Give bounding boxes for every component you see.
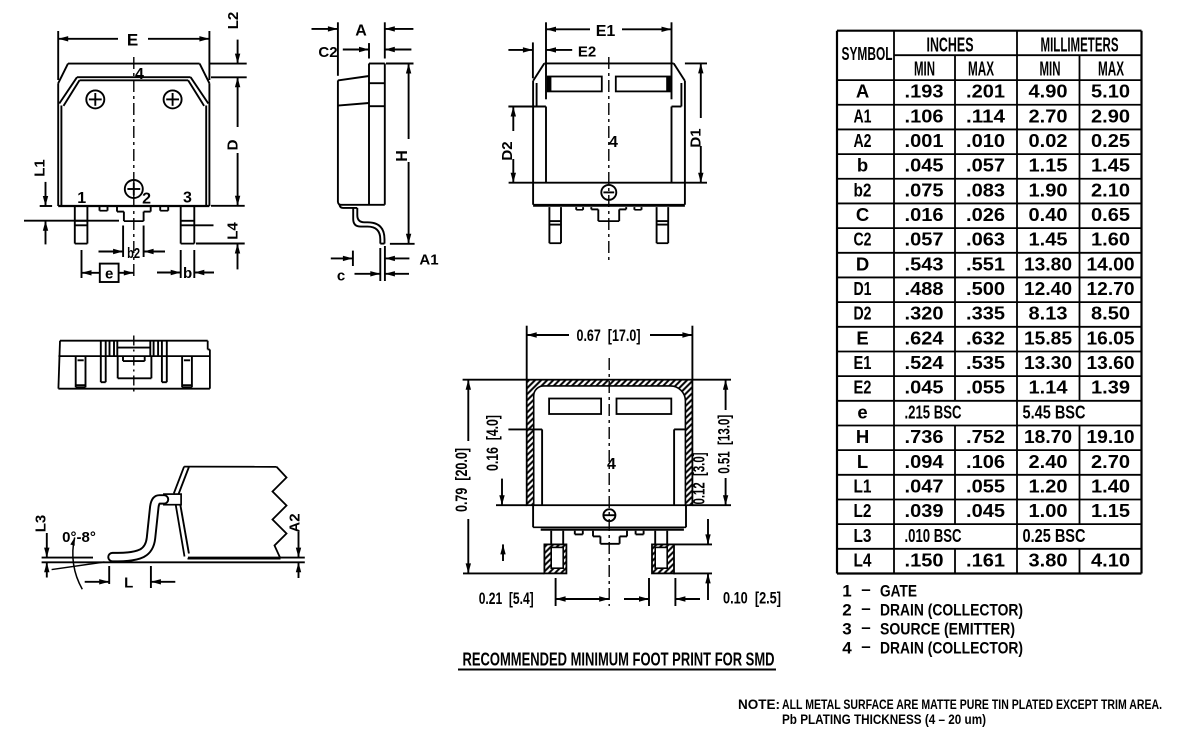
svg-text:.551: .551 — [966, 253, 1005, 274]
svg-text:L3: L3 — [33, 515, 50, 533]
svg-text:1: 1 — [842, 582, 851, 601]
svg-text:A: A — [355, 23, 367, 40]
svg-text:4: 4 — [135, 66, 144, 83]
svg-text:.193: .193 — [905, 81, 944, 102]
svg-text:2.70: 2.70 — [1091, 451, 1130, 472]
svg-text:MIN: MIN — [1040, 58, 1061, 81]
svg-text:13.60: 13.60 — [1087, 352, 1135, 373]
svg-text:D1: D1 — [688, 128, 705, 147]
svg-text:E2: E2 — [854, 377, 872, 398]
svg-text:e: e — [857, 401, 867, 422]
svg-text:E: E — [127, 31, 138, 50]
svg-text:L1: L1 — [32, 159, 49, 177]
svg-text:.106: .106 — [966, 451, 1005, 472]
svg-text:.535: .535 — [966, 352, 1005, 373]
svg-text:.624: .624 — [905, 327, 945, 348]
svg-text:b2: b2 — [854, 179, 872, 200]
svg-text:1.40: 1.40 — [1091, 475, 1130, 496]
svg-text:0.21 [5.4]: 0.21 [5.4] — [479, 589, 534, 608]
svg-text:MAX: MAX — [968, 58, 994, 81]
svg-text:0.02: 0.02 — [1029, 130, 1068, 151]
svg-text:D: D — [856, 253, 869, 274]
svg-text:.094: .094 — [905, 451, 945, 472]
svg-text:.543: .543 — [905, 253, 944, 274]
svg-text:.161: .161 — [966, 549, 1005, 570]
svg-text:3.80: 3.80 — [1029, 549, 1068, 570]
svg-text:2.70: 2.70 — [1029, 105, 1068, 126]
svg-text:.083: .083 — [966, 179, 1005, 200]
svg-text:L: L — [857, 451, 868, 472]
svg-text:.201: .201 — [966, 81, 1005, 102]
svg-text:ALL METAL SURFACE ARE MATTE PU: ALL METAL SURFACE ARE MATTE PURE TIN PLA… — [782, 697, 1162, 712]
svg-text:.010: .010 — [966, 130, 1005, 151]
svg-text:SYMBOL: SYMBOL — [842, 43, 893, 64]
svg-text:4: 4 — [607, 456, 616, 473]
svg-text:–: – — [861, 618, 870, 637]
svg-text:L4: L4 — [854, 549, 873, 570]
svg-text:0.25 BSC: 0.25 BSC — [1023, 525, 1086, 546]
svg-text:18.70: 18.70 — [1024, 426, 1072, 447]
svg-text:D: D — [225, 139, 242, 150]
svg-text:14.00: 14.00 — [1087, 253, 1135, 274]
svg-text:0.51 [13.0]: 0.51 [13.0] — [714, 415, 733, 474]
svg-text:3: 3 — [183, 190, 192, 207]
svg-text:0.40: 0.40 — [1029, 204, 1068, 225]
svg-text:16.05: 16.05 — [1087, 327, 1135, 348]
svg-text:E1: E1 — [854, 352, 872, 373]
svg-text:4.90: 4.90 — [1029, 81, 1068, 102]
svg-text:.045: .045 — [966, 500, 1005, 521]
svg-text:e: e — [105, 265, 113, 282]
svg-text:L1: L1 — [854, 475, 872, 496]
svg-text:.045: .045 — [905, 155, 944, 176]
svg-text:.215 BSC: .215 BSC — [905, 401, 962, 422]
svg-text:0.25: 0.25 — [1091, 130, 1130, 151]
svg-text:2: 2 — [142, 191, 151, 208]
svg-text:0.79 [20.0]: 0.79 [20.0] — [452, 448, 471, 512]
svg-text:H: H — [856, 426, 869, 447]
svg-text:12.40: 12.40 — [1024, 278, 1072, 299]
svg-text:A2: A2 — [286, 513, 303, 532]
svg-text:.010 BSC: .010 BSC — [905, 525, 962, 546]
svg-text:–: – — [861, 580, 870, 599]
svg-text:Pb PLATING THICKNESS (4 – 20 u: Pb PLATING THICKNESS (4 – 20 um) — [782, 712, 986, 727]
svg-text:GATE: GATE — [880, 582, 917, 601]
svg-text:.057: .057 — [966, 155, 1005, 176]
svg-text:c: c — [337, 268, 345, 285]
svg-text:.075: .075 — [905, 179, 944, 200]
svg-text:.055: .055 — [966, 475, 1005, 496]
svg-text:SOURCE (EMITTER): SOURCE (EMITTER) — [880, 620, 1015, 639]
svg-text:1.60: 1.60 — [1091, 229, 1130, 250]
svg-text:.632: .632 — [966, 327, 1005, 348]
svg-text:A: A — [856, 81, 869, 102]
svg-text:0.67 [17.0]: 0.67 [17.0] — [577, 326, 641, 345]
svg-text:DRAIN (COLLECTOR): DRAIN (COLLECTOR) — [880, 639, 1023, 658]
svg-text:1.14: 1.14 — [1029, 377, 1069, 398]
svg-text:D1: D1 — [854, 278, 872, 299]
svg-text:.488: .488 — [905, 278, 944, 299]
svg-text:MAX: MAX — [1098, 58, 1124, 81]
svg-text:RECOMMENDED MINIMUM FOOT PRINT: RECOMMENDED MINIMUM FOOT PRINT FOR SMD — [463, 650, 775, 670]
svg-text:1.15: 1.15 — [1091, 500, 1130, 521]
svg-text:INCHES: INCHES — [927, 34, 974, 57]
svg-text:L4: L4 — [224, 222, 241, 240]
svg-text:5.45 BSC: 5.45 BSC — [1023, 401, 1086, 422]
svg-text:H: H — [394, 150, 411, 162]
svg-text:.150: .150 — [905, 549, 944, 570]
svg-text:b: b — [183, 265, 192, 282]
svg-text:1.90: 1.90 — [1029, 179, 1068, 200]
svg-text:1.00: 1.00 — [1029, 500, 1068, 521]
svg-text:.063: .063 — [966, 229, 1005, 250]
svg-text:MILLIMETERS: MILLIMETERS — [1041, 34, 1119, 57]
svg-text:–: – — [861, 637, 870, 656]
svg-text:3: 3 — [842, 620, 851, 639]
svg-text:C2: C2 — [318, 44, 337, 61]
svg-text:.026: .026 — [966, 204, 1005, 225]
svg-text:2: 2 — [842, 601, 851, 620]
svg-text:b: b — [857, 155, 868, 176]
svg-text:DRAIN (COLLECTOR): DRAIN (COLLECTOR) — [880, 601, 1023, 620]
svg-text:8.13: 8.13 — [1029, 303, 1068, 324]
svg-text:.106: .106 — [905, 105, 944, 126]
svg-text:12.70: 12.70 — [1087, 278, 1135, 299]
svg-text:.752: .752 — [966, 426, 1005, 447]
svg-text:L3: L3 — [854, 525, 872, 546]
svg-text:1.20: 1.20 — [1029, 475, 1068, 496]
svg-text:1.45: 1.45 — [1091, 155, 1130, 176]
svg-text:5.10: 5.10 — [1091, 81, 1130, 102]
svg-text:A1: A1 — [419, 252, 438, 269]
svg-text:.500: .500 — [966, 278, 1005, 299]
svg-text:.335: .335 — [966, 303, 1005, 324]
svg-text:8.50: 8.50 — [1091, 303, 1130, 324]
svg-text:NOTE:: NOTE: — [738, 697, 780, 712]
svg-text:1: 1 — [77, 190, 86, 207]
svg-text:15.85: 15.85 — [1024, 327, 1072, 348]
svg-text:4: 4 — [842, 639, 852, 658]
svg-text:C: C — [856, 204, 869, 225]
svg-text:.001: .001 — [905, 130, 944, 151]
svg-text:E1: E1 — [596, 23, 616, 40]
svg-text:D2: D2 — [499, 141, 516, 160]
svg-text:A2: A2 — [854, 130, 872, 151]
svg-text:C2: C2 — [854, 229, 872, 250]
svg-text:.039: .039 — [905, 500, 944, 521]
svg-text:A1: A1 — [854, 105, 872, 126]
svg-text:2.10: 2.10 — [1091, 179, 1130, 200]
svg-text:0.12 [3.0]: 0.12 [3.0] — [689, 453, 708, 505]
svg-text:E2: E2 — [578, 44, 596, 61]
svg-text:2.90: 2.90 — [1091, 105, 1130, 126]
svg-text:b2: b2 — [127, 245, 140, 262]
svg-text:.047: .047 — [905, 475, 944, 496]
svg-text:.736: .736 — [905, 426, 944, 447]
svg-text:0.16 [4.0]: 0.16 [4.0] — [483, 415, 502, 471]
svg-text:2.40: 2.40 — [1029, 451, 1068, 472]
svg-text:0.10 [2.5]: 0.10 [2.5] — [723, 589, 781, 608]
svg-text:13.80: 13.80 — [1024, 253, 1072, 274]
svg-text:L2: L2 — [225, 12, 242, 30]
svg-text:L2: L2 — [854, 500, 872, 521]
svg-text:1.39: 1.39 — [1091, 377, 1130, 398]
svg-text:1.45: 1.45 — [1029, 229, 1068, 250]
svg-text:.055: .055 — [966, 377, 1005, 398]
svg-text:.045: .045 — [905, 377, 944, 398]
svg-text:MIN: MIN — [914, 58, 935, 81]
svg-text:.057: .057 — [905, 229, 944, 250]
svg-text:0°-8°: 0°-8° — [62, 529, 96, 546]
svg-text:13.30: 13.30 — [1024, 352, 1072, 373]
svg-text:D2: D2 — [854, 303, 872, 324]
svg-text:4.10: 4.10 — [1091, 549, 1130, 570]
svg-text:.016: .016 — [905, 204, 944, 225]
svg-text:.320: .320 — [905, 303, 944, 324]
svg-text:E: E — [856, 327, 868, 348]
svg-text:1.15: 1.15 — [1029, 155, 1068, 176]
svg-text:0.65: 0.65 — [1091, 204, 1130, 225]
svg-text:19.10: 19.10 — [1087, 426, 1135, 447]
svg-text:.524: .524 — [905, 352, 945, 373]
svg-text:L: L — [124, 574, 133, 591]
svg-text:–: – — [861, 599, 870, 618]
svg-text:4: 4 — [609, 134, 618, 151]
svg-text:.114: .114 — [966, 105, 1006, 126]
